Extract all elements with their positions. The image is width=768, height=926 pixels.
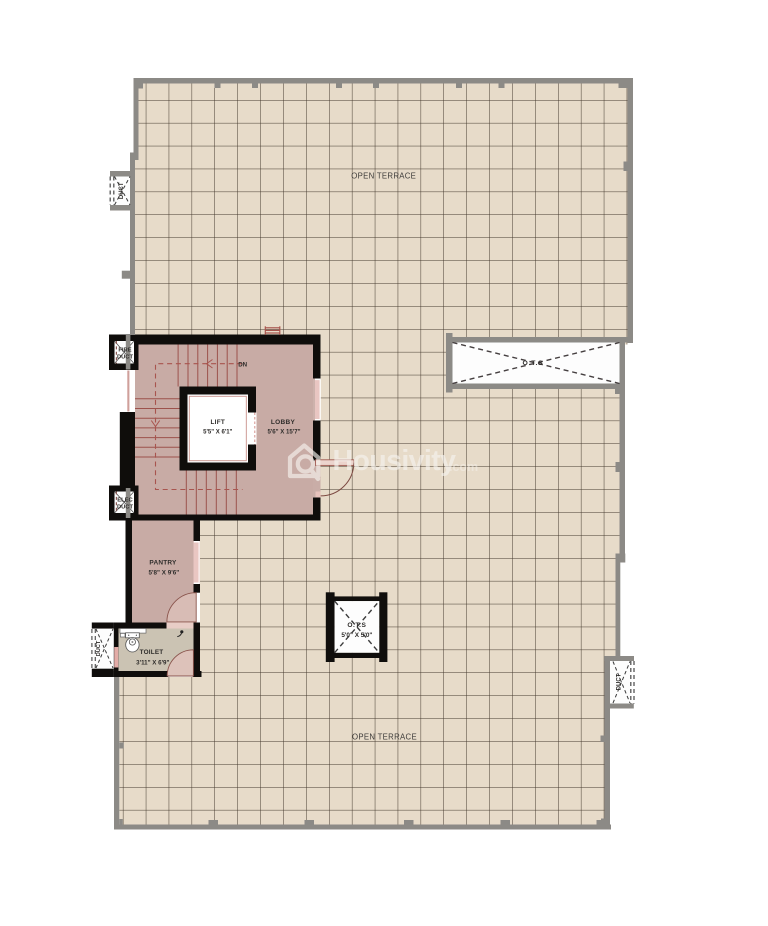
svg-text:FIRE: FIRE [118, 348, 131, 354]
svg-text:DUCT: DUCT [96, 640, 102, 656]
svg-text:LOBBY: LOBBY [271, 419, 296, 426]
svg-text:OPEN TERRACE: OPEN TERRACE [352, 733, 417, 742]
svg-text:Housivity: Housivity [333, 445, 457, 477]
svg-text:DUCT: DUCT [117, 355, 134, 361]
svg-text:DUCT: DUCT [117, 505, 134, 511]
svg-text:DN: DN [238, 361, 247, 368]
svg-text:O.T.S: O.T.S [347, 622, 366, 629]
svg-text:DUCT: DUCT [119, 182, 125, 199]
svg-text:OPEN TERRACE: OPEN TERRACE [351, 172, 416, 181]
svg-text:PANTRY: PANTRY [149, 560, 177, 567]
svg-text:5'5" X 6'1": 5'5" X 6'1" [203, 430, 232, 436]
svg-text:3'11" X 6'9": 3'11" X 6'9" [136, 660, 169, 667]
svg-text:5'0" X 5'0": 5'0" X 5'0" [341, 632, 372, 639]
svg-text:.com: .com [449, 460, 478, 474]
svg-text:TOILET: TOILET [140, 649, 164, 656]
svg-text:DUCT: DUCT [617, 673, 623, 690]
svg-text:5'6" X 15'7": 5'6" X 15'7" [267, 429, 300, 436]
svg-text:5'8" X 9'6": 5'8" X 9'6" [149, 570, 180, 577]
svg-text:O.T.S: O.T.S [523, 360, 544, 367]
svg-text:ELEC: ELEC [117, 498, 133, 504]
svg-text:LIFT: LIFT [210, 419, 225, 426]
